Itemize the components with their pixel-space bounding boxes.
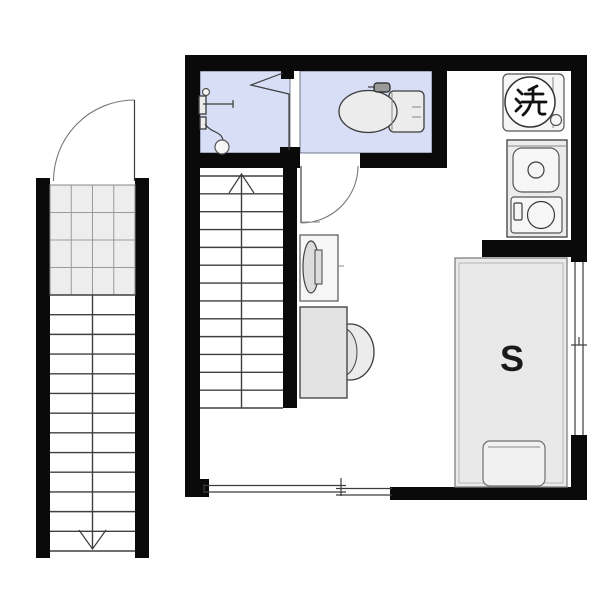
washing-machine [503, 74, 564, 131]
floor-plan-svg: S [0, 0, 600, 600]
main-unit: S [185, 55, 587, 500]
desk [300, 307, 347, 398]
exterior-stair-wall-right [135, 178, 149, 558]
wall-right-upper [571, 55, 587, 262]
bed: S [455, 258, 567, 487]
wall-left [185, 55, 200, 497]
floor-plan: S [0, 0, 600, 600]
tv-stand [300, 235, 344, 301]
kitchen-sink [513, 148, 559, 192]
interior-staircase [200, 174, 283, 408]
wall-divider-top-stub [281, 71, 294, 79]
window-right [571, 262, 587, 435]
toilet-door [301, 166, 358, 223]
wall-top [185, 55, 587, 71]
wall-bottom-left-corner [185, 479, 209, 497]
shower-room-floor [200, 71, 290, 153]
pillow [483, 441, 545, 486]
shower-head-icon [215, 140, 229, 154]
shower-valve-mount [199, 96, 206, 114]
wall-stairs-right [283, 162, 297, 408]
kitchen-unit [507, 140, 567, 237]
desk-and-chair [300, 307, 374, 398]
toilet-bowl [339, 91, 397, 133]
toilet-faucet-icon [374, 83, 390, 92]
entry-door-swing-arc [54, 100, 135, 181]
wall-toilet-right [432, 55, 447, 162]
wall-kitchen-bottom [482, 240, 571, 257]
exterior-stair-wall-left [36, 178, 50, 558]
shower-knob [203, 89, 210, 96]
shower-bracket [200, 117, 206, 129]
wall-bottom-right [390, 487, 587, 500]
washing-machine-dial [551, 115, 562, 126]
bed-size-label: S [500, 338, 524, 379]
tv-base [315, 250, 322, 284]
exterior-staircase [36, 100, 149, 558]
window-bottom [204, 478, 392, 496]
window-right-opening [571, 262, 587, 435]
toilet-door-swing-arc [301, 166, 358, 223]
wall-toilet-bottom [360, 153, 447, 168]
